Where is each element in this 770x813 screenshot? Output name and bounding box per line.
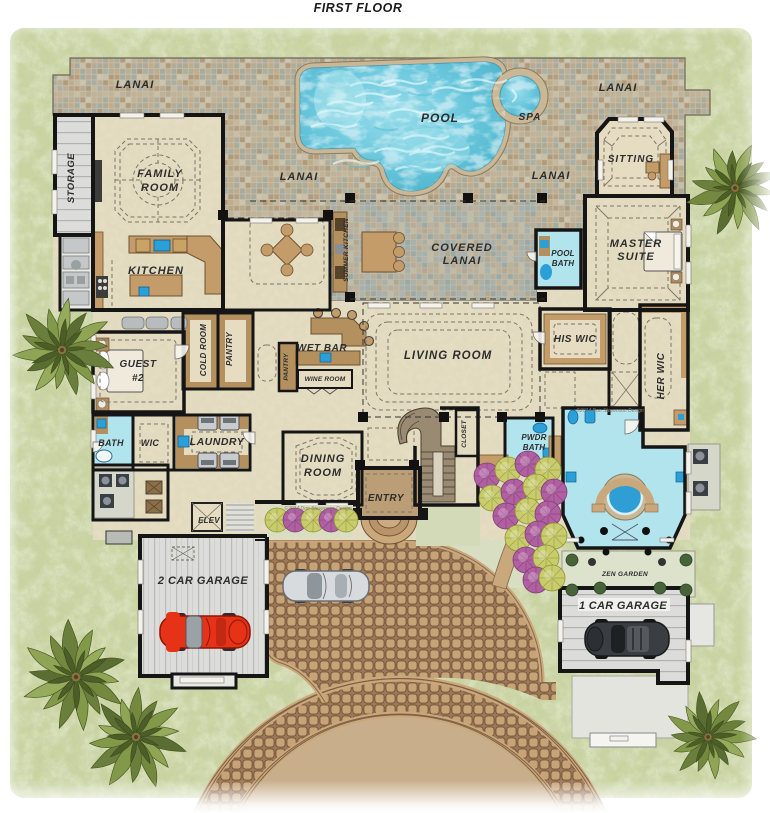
svg-text:2 CAR GARAGE: 2 CAR GARAGE xyxy=(157,575,249,587)
svg-text:1 CAR GARAGE: 1 CAR GARAGE xyxy=(579,600,667,612)
svg-text:GUEST: GUEST xyxy=(120,359,157,370)
svg-text:LANAI: LANAI xyxy=(599,82,638,94)
svg-text:ROOM: ROOM xyxy=(304,467,342,479)
svg-text:WIC: WIC xyxy=(141,438,160,448)
svg-text:SUITE: SUITE xyxy=(617,251,654,263)
svg-text:BATH: BATH xyxy=(552,259,574,268)
svg-text:POOL: POOL xyxy=(421,111,459,125)
svg-text:FIRST FLOOR: FIRST FLOOR xyxy=(314,1,403,15)
svg-text:©2014 Don Stevenson Design: ©2014 Don Stevenson Design xyxy=(284,505,352,512)
svg-text:MASTER: MASTER xyxy=(610,238,662,250)
svg-text:PANTRY: PANTRY xyxy=(283,353,290,381)
svg-text:KITCHEN: KITCHEN xyxy=(128,265,184,277)
svg-text:DINING: DINING xyxy=(301,453,346,465)
svg-text:WINE ROOM: WINE ROOM xyxy=(305,376,346,383)
svg-text:COLD ROOM: COLD ROOM xyxy=(199,324,208,377)
svg-text:LANAI: LANAI xyxy=(532,170,571,182)
svg-text:LANAI: LANAI xyxy=(280,171,319,183)
svg-text:COVERED: COVERED xyxy=(431,242,492,254)
svg-text:SUMMER KITCHEN: SUMMER KITCHEN xyxy=(343,218,350,282)
svg-text:CLOSET: CLOSET xyxy=(461,419,468,447)
svg-text:LAUNDRY: LAUNDRY xyxy=(190,436,245,448)
svg-text:FAMILY: FAMILY xyxy=(137,168,183,180)
svg-text:BATH: BATH xyxy=(98,438,124,448)
svg-text:©2014 Don Stevenson Design: ©2014 Don Stevenson Design xyxy=(576,407,644,414)
svg-text:BATH: BATH xyxy=(523,443,545,452)
svg-text:ROOM: ROOM xyxy=(141,182,179,194)
svg-text:HER WIC: HER WIC xyxy=(656,352,667,399)
svg-text:ZEN GARDEN: ZEN GARDEN xyxy=(601,571,648,578)
svg-text:PWDR: PWDR xyxy=(521,433,546,442)
svg-text:HIS WIC: HIS WIC xyxy=(554,334,597,345)
svg-text:STORAGE: STORAGE xyxy=(66,153,77,203)
svg-text:LANAI: LANAI xyxy=(443,255,482,267)
svg-text:LANAI: LANAI xyxy=(116,79,155,91)
svg-text:#2: #2 xyxy=(132,373,144,384)
svg-text:POOL: POOL xyxy=(551,249,574,258)
svg-text:WET BAR: WET BAR xyxy=(297,343,347,354)
svg-text:ENTRY: ENTRY xyxy=(368,493,405,504)
svg-text:SPA: SPA xyxy=(519,112,542,123)
svg-text:SITTING: SITTING xyxy=(608,154,654,165)
svg-text:PANTRY: PANTRY xyxy=(225,332,234,366)
svg-text:ELEV: ELEV xyxy=(198,516,220,525)
svg-text:LIVING ROOM: LIVING ROOM xyxy=(404,350,492,362)
